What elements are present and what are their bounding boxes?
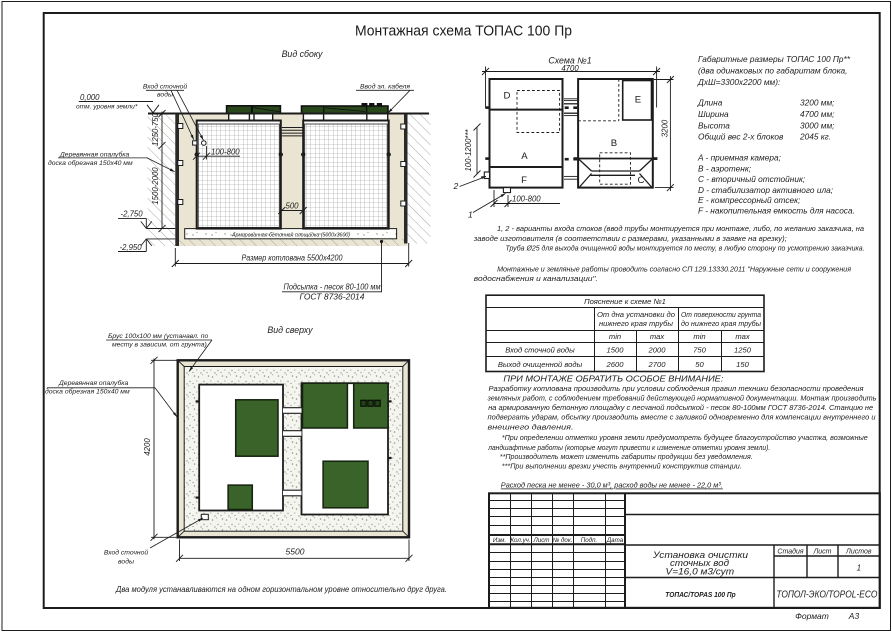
- svg-text:ГОСТ 8736-2014: ГОСТ 8736-2014: [299, 292, 364, 302]
- svg-text:max: max: [650, 332, 666, 341]
- svg-text:А3: А3: [848, 611, 860, 621]
- svg-text:Деревянная опалубка: Деревянная опалубка: [58, 379, 128, 387]
- svg-text:Армированная бетонная площадка: Армированная бетонная площадка (5000х360…: [231, 232, 350, 238]
- svg-text:водоснабжения и канализации".: водоснабжения и канализации".: [474, 274, 598, 283]
- svg-text:Кол.уч.: Кол.уч.: [510, 537, 530, 544]
- svg-text:5500: 5500: [286, 547, 305, 557]
- svg-text:Длина: Длина: [697, 98, 723, 108]
- svg-text:2700: 2700: [648, 360, 667, 369]
- svg-text:min: min: [693, 332, 705, 341]
- svg-text:1250: 1250: [734, 346, 752, 355]
- svg-text:на армированную бетонную площа: на армированную бетонную площадку с песч…: [488, 403, 873, 412]
- svg-text:Подп.: Подп.: [581, 537, 597, 544]
- svg-text:E - компрессорный отсек;: E - компрессорный отсек;: [698, 195, 801, 205]
- svg-text:Стадия: Стадия: [777, 548, 803, 556]
- svg-text:ландшафтные работы (которые мо: ландшафтные работы (которые могут привес…: [487, 443, 770, 452]
- svg-text:-2,950: -2,950: [120, 243, 143, 252]
- svg-text:3200: 3200: [661, 119, 670, 137]
- svg-text:Разработку котлована производи: Разработку котлована производить при усл…: [489, 384, 864, 393]
- svg-text:подвергать ударам, обсыпку про: подвергать ударам, обсыпку производить в…: [488, 413, 877, 422]
- svg-text:Два модуля устанавливаются на: Два модуля устанавливаются на одном гори…: [115, 585, 447, 594]
- svg-text:нижнего края трубы: нижнего края трубы: [599, 319, 673, 328]
- svg-text:Формат: Формат: [795, 611, 829, 621]
- svg-text:заводе изготовителя (в соответ: заводе изготовителя (в соответствии с ра…: [473, 234, 787, 243]
- svg-text:до нижнего края трубы: до нижнего края трубы: [681, 319, 761, 328]
- svg-text:100-1200***: 100-1200***: [464, 129, 473, 172]
- svg-text:150: 150: [736, 360, 749, 369]
- svg-text:ТОПАС/TOPAS 100 Пр: ТОПАС/TOPAS 100 Пр: [665, 590, 736, 599]
- svg-text:воды: воды: [118, 558, 134, 566]
- svg-text:Лист: Лист: [533, 537, 550, 544]
- svg-text:Брус 100х100 мм (устанавл. по: Брус 100х100 мм (устанавл. по: [108, 333, 208, 340]
- svg-text:Монтажные и земляные работы пр: Монтажные и земляные работы проводить со…: [497, 265, 851, 274]
- svg-text:500: 500: [285, 201, 299, 210]
- svg-text:F - накопительная емкость для: F - накопительная емкость для насоса.: [698, 206, 855, 216]
- svg-text:Ширина: Ширина: [698, 109, 729, 119]
- svg-text:2000: 2000: [648, 346, 667, 355]
- svg-text:D: D: [504, 91, 511, 102]
- svg-text:Размер котлована 5500х4200: Размер котлована 5500х4200: [242, 253, 343, 263]
- svg-text:Общий вес 2-х блоков: Общий вес 2-х блоков: [698, 132, 784, 142]
- svg-text:**Производитель может изменить: **Производитель может изменить габариты …: [500, 452, 753, 461]
- svg-text:50: 50: [695, 360, 704, 369]
- svg-text:F: F: [521, 175, 527, 186]
- svg-text:Расход песка не менее - 30,0 м: Расход песка не менее - 30,0 м³, расход …: [501, 481, 723, 490]
- svg-text:2600: 2600: [606, 360, 625, 369]
- svg-text:Вход сточной: Вход сточной: [104, 549, 149, 557]
- svg-text:Подсыпка - песок 80-100 мм: Подсыпка - песок 80-100 мм: [284, 282, 381, 292]
- svg-text:земляных работ, с соблюдением: земляных работ, с соблюдением требований…: [487, 393, 877, 402]
- svg-text:От дна установки до: От дна установки до: [597, 310, 675, 319]
- svg-text:1500-2000: 1500-2000: [151, 167, 160, 205]
- svg-text:3200 мм;: 3200 мм;: [800, 98, 835, 108]
- svg-text:A - приемная камера;: A - приемная камера;: [697, 152, 782, 162]
- svg-text:4200: 4200: [143, 438, 152, 456]
- svg-text:3000 мм;: 3000 мм;: [800, 120, 835, 130]
- svg-text:1250-750: 1250-750: [151, 112, 160, 146]
- svg-text:Вид сверху: Вид сверху: [267, 325, 313, 335]
- svg-text:Габаритные размеры ТОПАС 100 П: Габаритные размеры ТОПАС 100 Пр**: [698, 54, 851, 64]
- svg-text:Дата: Дата: [606, 537, 624, 544]
- svg-text:100-800: 100-800: [512, 195, 541, 204]
- svg-text:1: 1: [857, 564, 861, 573]
- svg-text:Труба Ø25 для выхода очищенной: Труба Ø25 для выхода очищенной воды монт…: [506, 244, 865, 253]
- svg-text:E: E: [635, 95, 641, 106]
- svg-text:От поверхности грунта: От поверхности грунта: [681, 310, 761, 319]
- svg-text:C - вторичный отстойник;: C - вторичный отстойник;: [698, 174, 806, 184]
- svg-text:V=16,0 м3/сут: V=16,0 м3/сут: [666, 567, 735, 577]
- svg-text:Ввод эл. кабеля: Ввод эл. кабеля: [360, 83, 410, 91]
- svg-text:4700 мм;: 4700 мм;: [800, 109, 835, 119]
- svg-text:Выход очищенной воды: Выход очищенной воды: [498, 360, 583, 369]
- svg-text:воды: воды: [157, 91, 173, 99]
- svg-text:доска обрезная 150х40 мм: доска обрезная 150х40 мм: [45, 388, 130, 396]
- svg-text:0,000: 0,000: [80, 93, 100, 102]
- svg-text:C: C: [638, 175, 645, 186]
- svg-text:B: B: [611, 138, 617, 149]
- svg-text:***При выполнении врезки учест: ***При выполнении врезки учесть внутренн…: [502, 461, 742, 470]
- svg-text:A: A: [521, 151, 528, 162]
- svg-text:min: min: [609, 332, 621, 341]
- svg-text:Деревянная опалубка: Деревянная опалубка: [59, 151, 129, 159]
- svg-text:D - стабилизатор активного ила: D - стабилизатор активного ила;: [698, 185, 834, 195]
- svg-text:Высота: Высота: [698, 120, 730, 130]
- svg-text:Вход сточной: Вход сточной: [143, 83, 188, 91]
- svg-text:Лист: Лист: [812, 549, 831, 556]
- svg-text:ТОПОЛ-ЭКО/TOPOL-ECO: ТОПОЛ-ЭКО/TOPOL-ECO: [776, 590, 877, 601]
- svg-text:ПРИ МОНТАЖЕ ОБРАТИТЬ ОСОБОЕ ВН: ПРИ МОНТАЖЕ ОБРАТИТЬ ОСОБОЕ ВНИМАНИЕ:: [503, 375, 723, 384]
- svg-text:max: max: [735, 332, 751, 341]
- svg-text:Вход сточной воды: Вход сточной воды: [505, 346, 575, 355]
- svg-text:2: 2: [453, 181, 459, 191]
- svg-text:1500: 1500: [607, 346, 625, 355]
- svg-text:отм. уровня земли*: отм. уровня земли*: [76, 104, 138, 111]
- svg-text:1: 1: [468, 210, 473, 220]
- svg-text:2045 кг.: 2045 кг.: [799, 132, 831, 142]
- svg-text:ДхШ=3300х2200 мм):: ДхШ=3300х2200 мм):: [697, 77, 780, 87]
- svg-text:(два одинаковых по габаритам б: (два одинаковых по габаритам блока,: [698, 65, 847, 75]
- svg-text:доска обрезная 150х40 мм: доска обрезная 150х40 мм: [48, 159, 133, 167]
- svg-text:B - аэротенк;: B - аэротенк;: [698, 164, 752, 174]
- svg-text:Пояснение к схеме №1: Пояснение к схеме №1: [584, 297, 666, 306]
- svg-text:внешнего давления.: внешнего давления.: [488, 422, 574, 431]
- svg-text:Монтажная схема ТОПАС 100 Пр: Монтажная схема ТОПАС 100 Пр: [355, 23, 572, 40]
- svg-text:750: 750: [693, 346, 706, 355]
- svg-text:месту в зависим. от грунта): месту в зависим. от грунта): [112, 342, 207, 349]
- svg-text:Листов: Листов: [845, 549, 872, 556]
- svg-text:1, 2 - варианты входа стоков: 1, 2 - варианты входа стоков (ввод трубы…: [497, 224, 864, 233]
- svg-text:№ док.: № док.: [553, 537, 573, 544]
- svg-text:Изм.: Изм.: [493, 537, 506, 544]
- svg-text:Вид сбоку: Вид сбоку: [282, 49, 323, 59]
- svg-text:100-800: 100-800: [211, 147, 240, 156]
- svg-text:-2,750: -2,750: [121, 210, 144, 219]
- svg-text:*При определении отметки уровн: *При определении отметки уровня земли пр…: [502, 433, 868, 442]
